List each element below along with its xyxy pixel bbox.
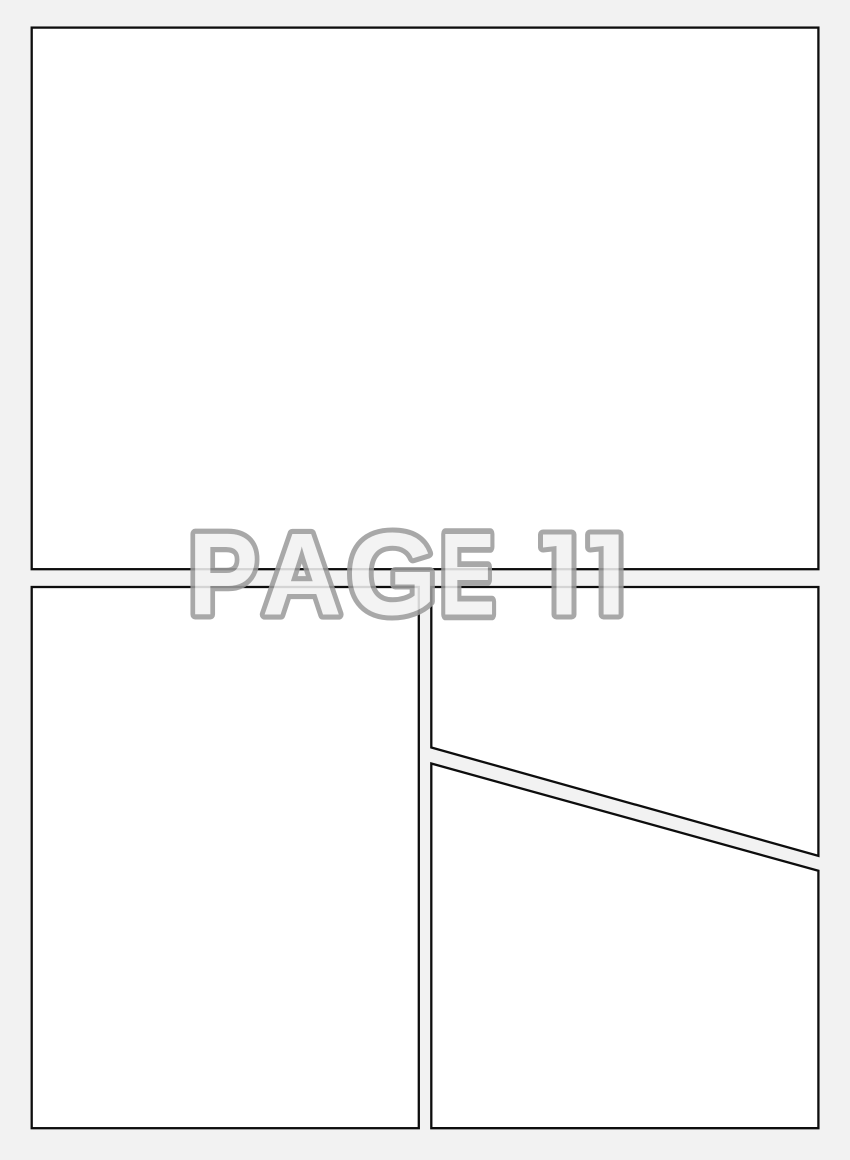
svg-text:A: A <box>262 510 342 641</box>
svg-text:E: E <box>440 509 496 640</box>
svg-text:P: P <box>188 509 258 640</box>
svg-text:G: G <box>347 509 437 640</box>
